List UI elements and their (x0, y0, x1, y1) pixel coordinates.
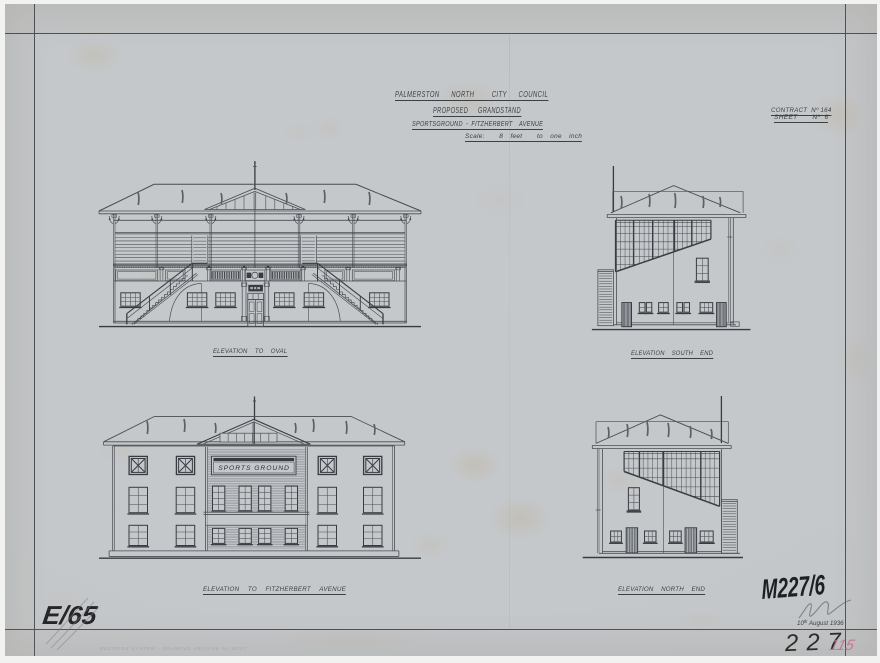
svg-text:SPORTS GROUND: SPORTS GROUND (218, 465, 290, 472)
